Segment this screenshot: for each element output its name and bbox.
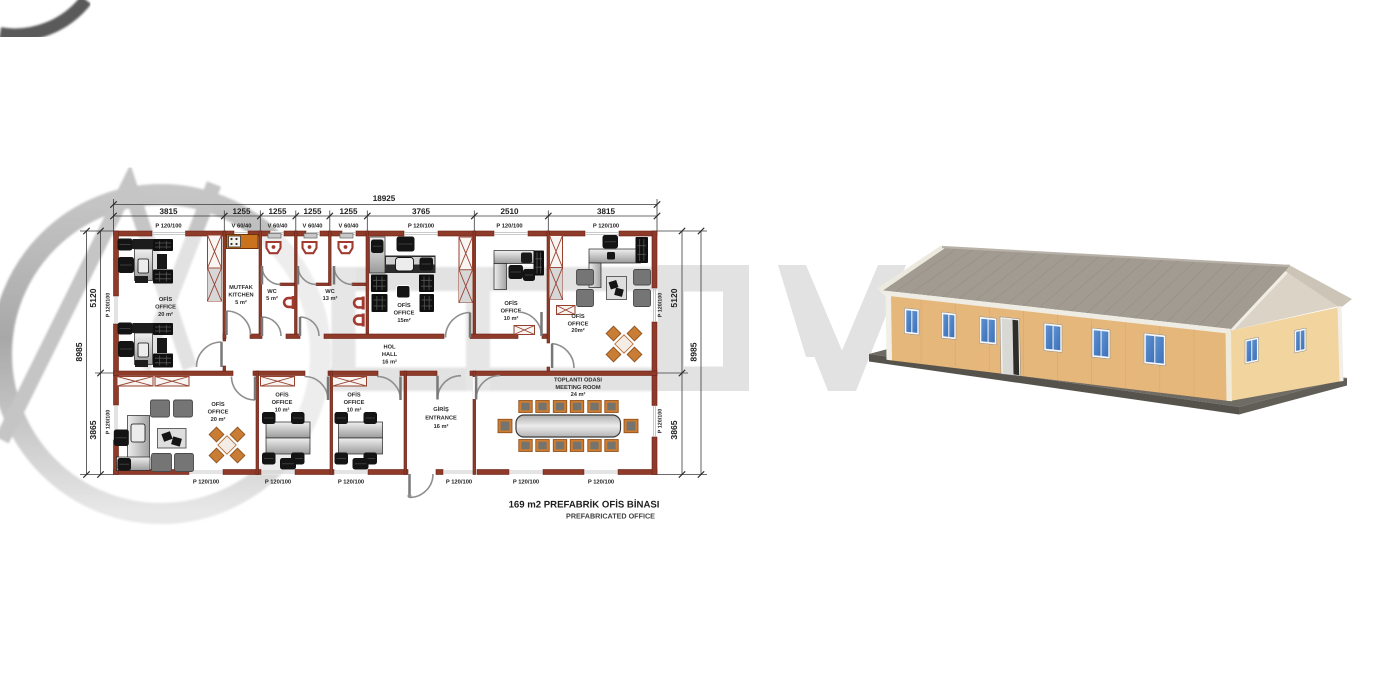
- svg-text:OFİS: OFİS: [275, 392, 288, 399]
- svg-text:OFİS: OFİS: [211, 401, 224, 408]
- svg-text:V 60/40: V 60/40: [232, 223, 252, 230]
- svg-text:1255: 1255: [232, 207, 251, 216]
- svg-text:OFFICE: OFFICE: [272, 400, 293, 406]
- svg-text:10 m²: 10 m²: [504, 316, 519, 322]
- svg-text:8985: 8985: [689, 342, 699, 361]
- svg-text:169 m2 PREFABRİK OFİS BİNASI: 169 m2 PREFABRİK OFİS BİNASI: [509, 499, 660, 511]
- svg-text:P 120/100: P 120/100: [338, 479, 364, 486]
- svg-text:15m²: 15m²: [397, 318, 410, 324]
- svg-text:10 m²: 10 m²: [347, 408, 362, 414]
- svg-text:P 120/100: P 120/100: [658, 293, 664, 317]
- svg-text:P 120/100: P 120/100: [513, 479, 539, 486]
- svg-text:WC: WC: [267, 289, 276, 295]
- svg-text:16 m²: 16 m²: [382, 360, 397, 366]
- svg-text:OFİS: OFİS: [347, 392, 360, 399]
- svg-text:3815: 3815: [159, 207, 178, 216]
- svg-text:8985: 8985: [74, 342, 84, 361]
- svg-text:KITCHEN: KITCHEN: [228, 293, 253, 299]
- svg-text:5 m²: 5 m²: [235, 300, 247, 306]
- svg-text:HALL: HALL: [382, 352, 398, 358]
- svg-text:P 120/100: P 120/100: [446, 479, 472, 486]
- svg-text:MEETING ROOM: MEETING ROOM: [555, 385, 600, 391]
- svg-text:OFFICE: OFFICE: [568, 322, 589, 328]
- svg-text:3865: 3865: [669, 420, 679, 439]
- svg-text:10 m²: 10 m²: [275, 408, 290, 414]
- svg-text:OFİS: OFİS: [571, 313, 584, 320]
- svg-text:V 60/40: V 60/40: [303, 223, 323, 230]
- svg-text:P 120/100: P 120/100: [155, 223, 181, 230]
- svg-text:P 120/100: P 120/100: [265, 479, 291, 486]
- svg-text:24 m²: 24 m²: [571, 392, 586, 398]
- svg-text:OFFICE: OFFICE: [208, 410, 229, 416]
- svg-text:5120: 5120: [669, 288, 679, 307]
- svg-text:OFFICE: OFFICE: [394, 311, 415, 317]
- svg-text:16 m²: 16 m²: [434, 424, 449, 430]
- svg-text:P 120/100: P 120/100: [193, 479, 219, 486]
- svg-text:3765: 3765: [412, 207, 431, 216]
- svg-text:20 m²: 20 m²: [158, 312, 173, 318]
- svg-text:1255: 1255: [303, 207, 322, 216]
- svg-text:HOL: HOL: [383, 345, 396, 351]
- svg-text:2510: 2510: [500, 207, 519, 216]
- svg-text:OFFICE: OFFICE: [344, 400, 365, 406]
- svg-text:OFİS: OFİS: [159, 296, 172, 303]
- svg-text:P 120/100: P 120/100: [588, 479, 614, 486]
- svg-text:GİRİŞ: GİRİŞ: [433, 406, 449, 413]
- svg-text:ENTRANCE: ENTRANCE: [425, 416, 457, 422]
- svg-text:MUTFAK: MUTFAK: [229, 285, 254, 291]
- svg-text:V 60/40: V 60/40: [268, 223, 288, 230]
- svg-text:P 120/100: P 120/100: [106, 293, 112, 317]
- svg-text:TOPLANTI ODASI: TOPLANTI ODASI: [554, 378, 602, 384]
- svg-text:OFFICE: OFFICE: [155, 305, 176, 311]
- svg-text:OFİS: OFİS: [397, 302, 410, 309]
- svg-text:5 m²: 5 m²: [266, 296, 278, 302]
- svg-text:1255: 1255: [268, 207, 287, 216]
- svg-text:P 120/100: P 120/100: [408, 223, 434, 230]
- svg-text:WC: WC: [325, 289, 334, 295]
- svg-text:PREFABRICATED OFFICE: PREFABRICATED OFFICE: [566, 512, 655, 521]
- svg-text:3815: 3815: [597, 207, 616, 216]
- svg-text:P 120/100: P 120/100: [106, 410, 112, 434]
- svg-text:20m²: 20m²: [571, 328, 584, 334]
- svg-text:P 120/100: P 120/100: [593, 223, 619, 230]
- svg-text:P 120/100: P 120/100: [658, 409, 664, 433]
- svg-text:3865: 3865: [88, 420, 98, 439]
- svg-text:V 60/40: V 60/40: [339, 223, 359, 230]
- svg-text:1255: 1255: [339, 207, 358, 216]
- svg-text:20 m²: 20 m²: [211, 417, 226, 423]
- svg-text:5120: 5120: [88, 288, 98, 307]
- svg-text:OFİS: OFİS: [504, 300, 517, 307]
- svg-text:P 120/100: P 120/100: [496, 223, 522, 230]
- svg-text:18925: 18925: [373, 194, 396, 203]
- svg-text:13 m²: 13 m²: [323, 296, 338, 302]
